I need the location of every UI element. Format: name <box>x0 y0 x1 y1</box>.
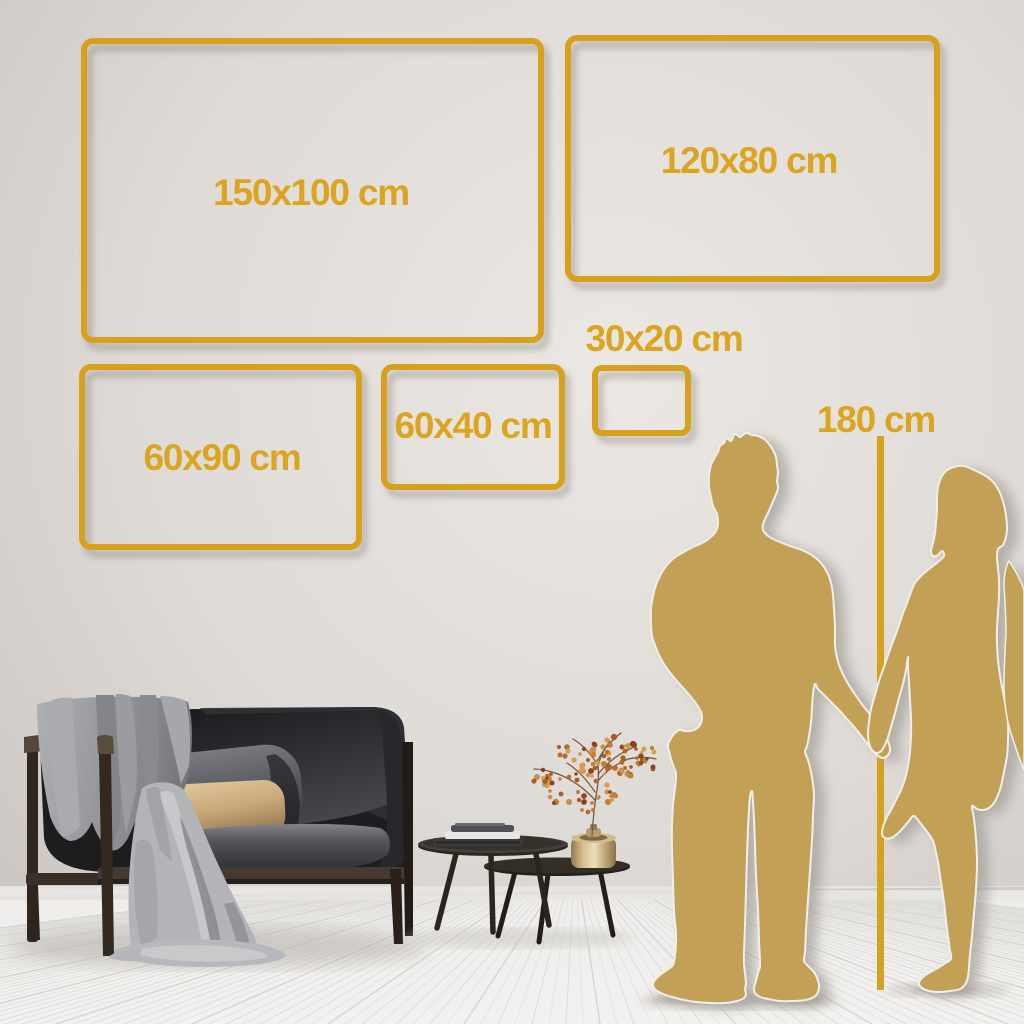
svg-text:150x100 cm: 150x100 cm <box>213 172 409 213</box>
svg-text:120x80 cm: 120x80 cm <box>661 140 837 181</box>
svg-text:60x90 cm: 60x90 cm <box>143 437 300 478</box>
svg-text:60x40 cm: 60x40 cm <box>394 405 551 446</box>
svg-text:30x20 cm: 30x20 cm <box>585 318 742 359</box>
svg-text:180 cm: 180 cm <box>817 399 935 440</box>
